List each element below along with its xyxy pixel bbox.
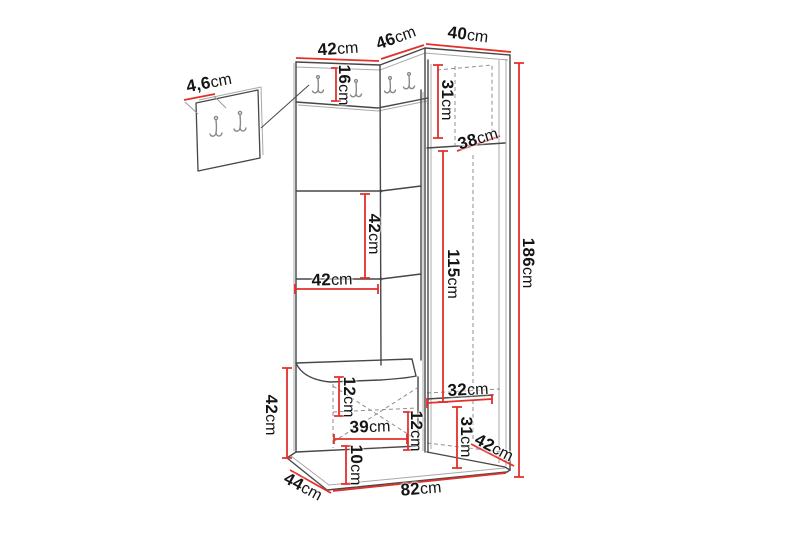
furniture-line-drawing [0,0,800,533]
dim-cabinet-lower-height: 31cm [457,417,475,458]
coat-hook-icon [234,111,246,131]
dim-cabinet-shelf-width: 32cm [447,380,489,400]
dim-back-panel-width: 42cm [311,270,352,289]
furniture-outline [287,48,510,490]
dim-divider-height: 12cm [407,411,425,452]
dim-cabinet-upper-height: 31cm [438,80,456,121]
dim-left-section-width: 42cm [317,39,359,60]
dim-back-panel-height: 42cm [365,214,383,255]
dim-bench-height: 42cm [262,395,280,436]
dim-seat-front-height: 12cm [340,377,358,418]
coat-hook-icon [404,73,415,89]
coat-hook-icon [210,116,222,136]
wall-hook-panel-detail [185,85,309,171]
dim-door-height: 115cm [444,249,462,299]
coat-hook-icon [385,77,396,93]
dim-total-height: 186cm [519,238,537,289]
dim-drawer-width: 39cm [349,417,390,436]
dim-base-width: 82cm [400,478,442,499]
dim-hook-panel-height: 16cm [335,65,353,106]
coat-hook-icons [210,73,415,137]
dimension-diagram: 4,6cm 42cm 46cm 40cm 16cm 31cm 38cm 42cm… [0,0,800,533]
dim-plinth-height: 10cm [347,445,365,486]
coat-hook-icon [313,76,324,93]
